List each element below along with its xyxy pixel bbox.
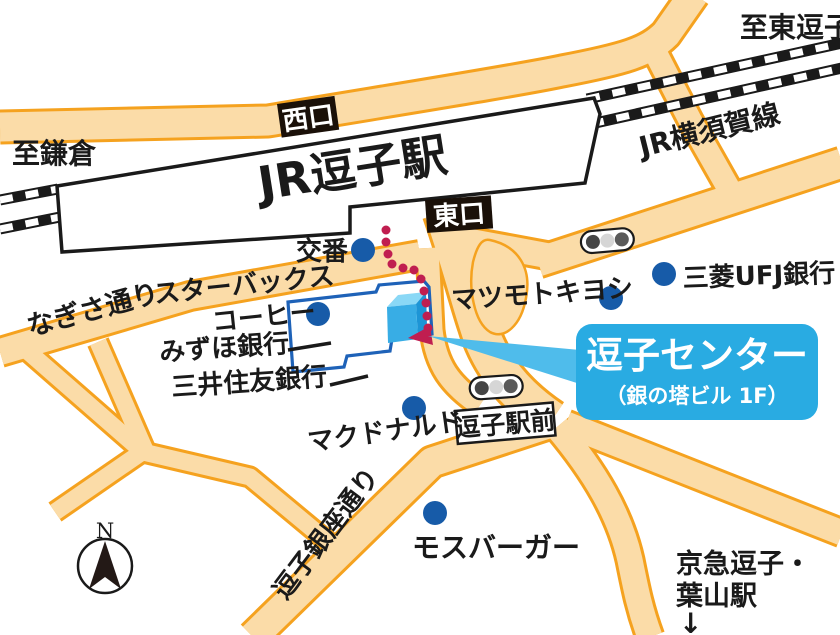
smbc-label: 三井住友銀行	[170, 361, 328, 403]
mosburger-label: モスバーガー	[412, 531, 580, 564]
dir-kamakura: 至鎌倉	[12, 137, 97, 170]
destination-callout: 逗子センター （銀の塔ビル 1F）	[576, 324, 818, 420]
zushi-center-access-map: JR逗子駅 西口 東口 逗子センター （銀の塔ビル 1F）	[0, 0, 840, 635]
west-exit-label: 西口	[281, 100, 337, 137]
koban-dot	[351, 238, 375, 262]
compass-icon: N	[78, 519, 132, 593]
traffic-light-icon	[469, 374, 523, 400]
east-exit-badge: 東口	[425, 195, 493, 233]
destination-title: 逗子センター	[586, 334, 808, 377]
map-canvas: JR逗子駅 西口 東口 逗子センター （銀の塔ビル 1F）	[0, 0, 840, 635]
east-exit-label: 東口	[432, 199, 486, 233]
traffic-light-icon	[580, 227, 635, 254]
railway-to-kamakura	[0, 189, 60, 229]
dir-keikyu-line1: 京急逗子・	[676, 548, 811, 580]
smbc-leader-line	[330, 376, 368, 385]
keikyu-down-arrow-icon: ↓	[679, 607, 702, 635]
mufg-label: 三菱UFJ銀行	[682, 258, 836, 294]
mufg-dot	[652, 262, 676, 286]
compass-north-label: N	[96, 519, 114, 543]
mizuho-label: みずほ銀行	[158, 328, 290, 368]
dir-higashi-zushi: 至東逗子	[740, 11, 840, 44]
ekimae-badge: 逗子駅前	[454, 402, 557, 444]
destination-subtitle: （銀の塔ビル 1F）	[605, 384, 788, 408]
mosburger-dot	[423, 501, 447, 525]
